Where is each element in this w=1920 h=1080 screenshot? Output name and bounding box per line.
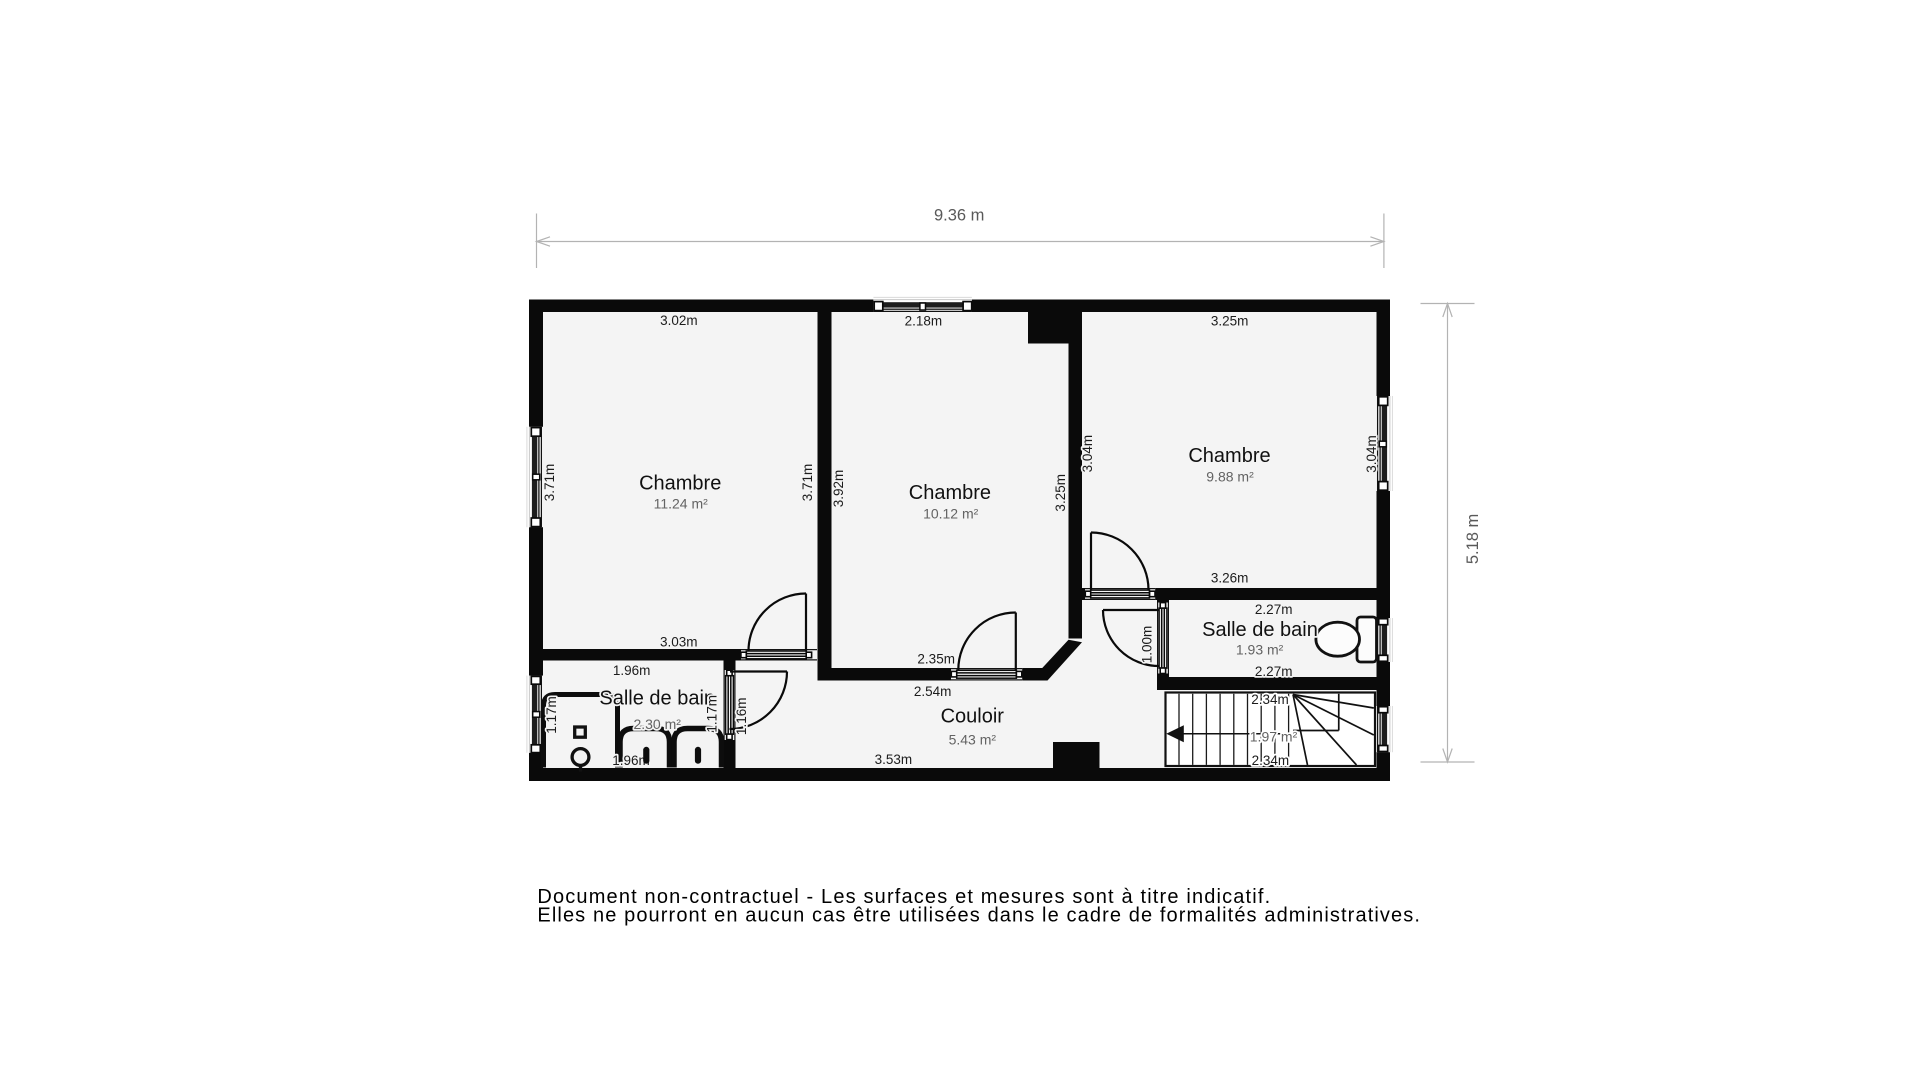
svg-text:1.00m: 1.00m: [1140, 626, 1155, 664]
svg-text:1.97 m²: 1.97 m²: [1250, 729, 1298, 745]
svg-text:1.17m: 1.17m: [544, 696, 559, 734]
svg-text:Salle de bain: Salle de bain: [599, 688, 715, 710]
svg-text:3.04m: 3.04m: [1364, 435, 1379, 473]
svg-text:5.43 m²: 5.43 m²: [949, 732, 997, 748]
svg-text:2.27m: 2.27m: [1255, 664, 1293, 679]
svg-text:3.03m: 3.03m: [660, 635, 698, 650]
svg-text:3.71m: 3.71m: [800, 464, 815, 502]
svg-text:3.04m: 3.04m: [1080, 435, 1095, 473]
svg-text:Couloir: Couloir: [941, 706, 1005, 728]
svg-text:Chambre: Chambre: [1188, 445, 1270, 467]
svg-text:1.93 m²: 1.93 m²: [1236, 641, 1284, 657]
svg-text:Chambre: Chambre: [909, 482, 991, 504]
svg-text:2.18m: 2.18m: [905, 314, 943, 329]
svg-text:9.36 m: 9.36 m: [934, 207, 984, 225]
svg-text:1.16m: 1.16m: [734, 698, 749, 736]
svg-text:3.71m: 3.71m: [542, 464, 557, 502]
svg-text:2.35m: 2.35m: [917, 652, 955, 667]
svg-text:1.96m: 1.96m: [613, 663, 651, 678]
svg-text:Chambre: Chambre: [639, 473, 721, 495]
svg-text:1.17m: 1.17m: [705, 695, 720, 733]
svg-text:3.02m: 3.02m: [660, 313, 698, 328]
svg-text:10.12 m²: 10.12 m²: [923, 506, 979, 522]
svg-text:3.53m: 3.53m: [875, 752, 913, 767]
svg-text:3.26m: 3.26m: [1211, 571, 1249, 586]
svg-text:Salle de bain: Salle de bain: [1202, 619, 1318, 641]
svg-text:9.88 m²: 9.88 m²: [1206, 469, 1254, 485]
svg-text:3.92m: 3.92m: [831, 470, 846, 508]
svg-text:5.18 m: 5.18 m: [1464, 514, 1482, 564]
svg-text:2.34m: 2.34m: [1252, 753, 1290, 768]
svg-text:3.25m: 3.25m: [1053, 474, 1068, 512]
svg-text:2.34m: 2.34m: [1251, 692, 1289, 707]
svg-text:2.27m: 2.27m: [1255, 602, 1293, 617]
svg-text:11.24 m²: 11.24 m²: [654, 496, 709, 512]
svg-text:2.30 m²: 2.30 m²: [633, 716, 681, 732]
svg-text:3.25m: 3.25m: [1211, 314, 1249, 329]
svg-text:Elles ne pourront en aucun cas: Elles ne pourront en aucun cas être util…: [537, 905, 1421, 927]
svg-text:2.54m: 2.54m: [914, 684, 952, 699]
